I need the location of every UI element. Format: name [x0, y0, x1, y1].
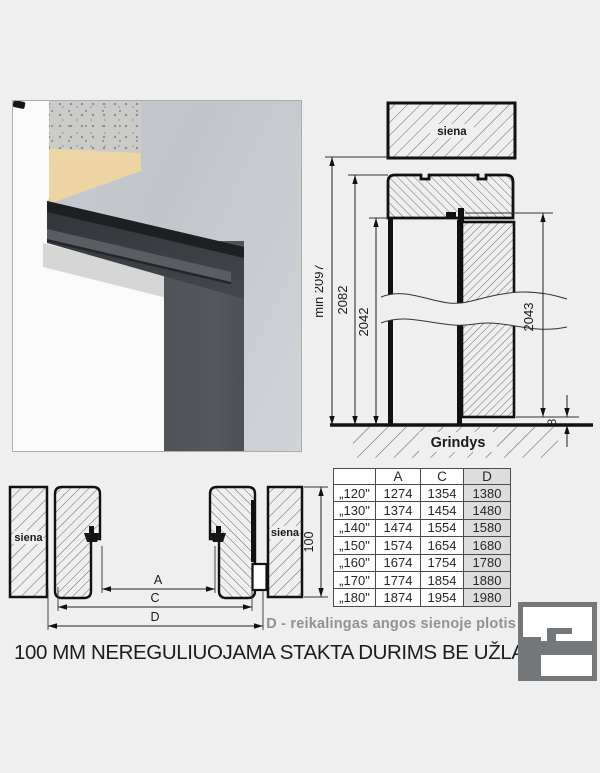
section-frame-left	[55, 487, 100, 598]
caption-d-note: D - reikalingas angos sienoje plotis	[260, 616, 516, 632]
value-cell: 1954	[421, 589, 464, 606]
dim-frame-height: 2082	[335, 286, 350, 315]
size-cell: „180"	[334, 589, 376, 606]
strike-plate	[253, 564, 267, 590]
wall-left-label: siena	[14, 532, 43, 544]
table-header-cell: D	[464, 469, 511, 485]
floor-label: Grindys	[431, 435, 486, 451]
value-cell: 1380	[464, 485, 511, 502]
table-header-cell	[334, 469, 376, 485]
table-row: „120"127413541380	[334, 485, 511, 502]
table-header-cell: C	[421, 469, 464, 485]
value-cell: 1980	[464, 589, 511, 606]
value-cell: 1880	[464, 571, 511, 588]
page-title: 100 MM NEREGULIUOJAMA STAKTA DURIMS BE U…	[14, 641, 574, 665]
frame-corner-photo	[12, 100, 302, 452]
value-cell: 1754	[421, 554, 464, 571]
dim-min-total: min 2097	[315, 264, 326, 317]
value-cell: 1574	[376, 537, 421, 554]
value-cell: 1854	[421, 571, 464, 588]
value-cell: 1480	[464, 502, 511, 519]
elevation-jamb-edge-left	[388, 218, 393, 425]
value-cell: 1774	[376, 571, 421, 588]
size-cell: „170"	[334, 571, 376, 588]
value-cell: 1674	[376, 554, 421, 571]
dim-a-label: A	[154, 573, 163, 587]
elevation-head-frame	[388, 175, 513, 218]
gasket-detail	[446, 212, 456, 218]
wall-right-label: siena	[271, 527, 300, 539]
brand-logo	[518, 602, 597, 681]
seal-right-pin	[216, 526, 221, 533]
value-cell: 1454	[421, 502, 464, 519]
dim-opening-height: 2042	[356, 308, 371, 337]
dim-floor-gap: 8	[547, 419, 559, 425]
table-row: „160"167417541780	[334, 554, 511, 571]
size-cell: „140"	[334, 519, 376, 536]
dimensions-table: A C D „120"127413541380„130"137414541480…	[333, 468, 511, 607]
table-header-cell: A	[376, 469, 421, 485]
table-row: „170"177418541880	[334, 571, 511, 588]
table-row: „130"137414541480	[334, 502, 511, 519]
strike-bar	[251, 500, 256, 562]
photo-seal-detail	[12, 100, 25, 109]
value-cell: 1874	[376, 589, 421, 606]
dim-depth: 100	[302, 532, 316, 553]
value-cell: 1354	[421, 485, 464, 502]
wall-label: siena	[437, 126, 467, 138]
value-cell: 1780	[464, 554, 511, 571]
table-row: „180"187419541980	[334, 589, 511, 606]
size-cell: „130"	[334, 502, 376, 519]
dim-c-label: C	[150, 591, 159, 605]
value-cell: 1274	[376, 485, 421, 502]
seal-left-pin	[89, 526, 94, 533]
elevation-drawing: siena Grindys min 2097 2082	[315, 95, 600, 470]
size-cell: „120"	[334, 485, 376, 502]
table-row: „150"157416541680	[334, 537, 511, 554]
value-cell: 1374	[376, 502, 421, 519]
value-cell: 1654	[421, 537, 464, 554]
dimensions-table-wrap: A C D „120"127413541380„130"137414541480…	[333, 468, 511, 607]
size-cell: „160"	[334, 554, 376, 571]
dim-d-label: D	[150, 610, 159, 624]
section-frame-right	[210, 487, 255, 598]
section-wall-right	[268, 487, 302, 597]
table-body: „120"127413541380„130"137414541480„140"1…	[334, 485, 511, 607]
table-row: „140"147415541580	[334, 519, 511, 536]
table-header-row: A C D	[334, 469, 511, 485]
size-cell: „150"	[334, 537, 376, 554]
value-cell: 1580	[464, 519, 511, 536]
spec-sheet: siena Grindys min 2097 2082	[0, 0, 600, 773]
value-cell: 1474	[376, 519, 421, 536]
gasket-detail-2	[458, 208, 464, 221]
value-cell: 1680	[464, 537, 511, 554]
dim-leaf-height: 2043	[521, 303, 536, 332]
value-cell: 1554	[421, 519, 464, 536]
